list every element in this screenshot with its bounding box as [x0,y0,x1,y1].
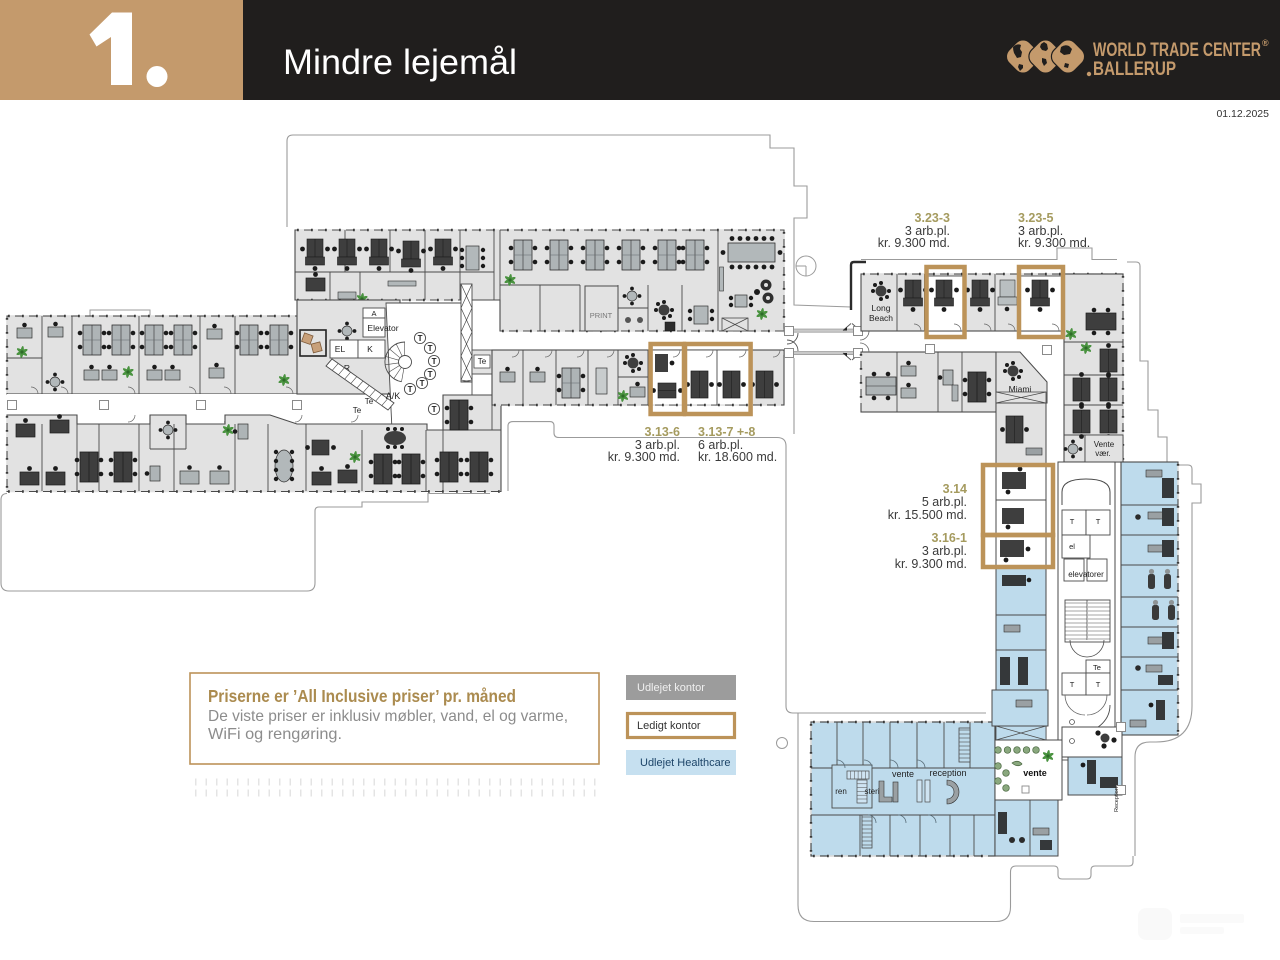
svg-text:ren: ren [835,787,847,796]
svg-text:WORLD TRADE CENTER: WORLD TRADE CENTER [1093,40,1261,61]
svg-text:3.13-7 +-8: 3.13-7 +-8 [698,425,755,439]
svg-text:Priserne er ’All Inclusive pri: Priserne er ’All Inclusive priser’ pr. m… [208,686,516,706]
svg-text:Te: Te [353,406,362,415]
svg-text:Long: Long [872,303,891,313]
svg-text:PRINT: PRINT [590,311,613,320]
svg-text:3.23-3: 3.23-3 [915,211,950,225]
svg-text:reception: reception [929,768,966,778]
svg-text:vente: vente [1023,768,1047,778]
svg-text:01.12.2025: 01.12.2025 [1216,108,1269,120]
svg-text:BALLERUP: BALLERUP [1093,59,1176,80]
svg-text:T: T [1070,517,1075,526]
svg-text:kr. 15.500 md.: kr. 15.500 md. [888,508,967,522]
svg-text:3.23-5: 3.23-5 [1018,211,1053,225]
svg-text:5 arb.pl.: 5 arb.pl. [922,495,967,509]
svg-text:De viste priser er inklusiv mø: De viste priser er inklusiv møbler, vand… [208,708,568,725]
svg-text:elevatorer: elevatorer [1068,570,1104,579]
svg-text:Vente: Vente [1094,440,1115,449]
svg-text:Udlejet Healthcare: Udlejet Healthcare [640,757,731,769]
svg-text:vente: vente [892,769,914,779]
svg-text:T: T [1070,680,1075,689]
svg-text:A/K: A/K [386,391,401,401]
svg-text:kr. 9.300 md.: kr. 9.300 md. [608,450,680,464]
svg-text:3.16-1: 3.16-1 [932,531,967,545]
svg-text:kr. 9.300 md.: kr. 9.300 md. [895,557,967,571]
svg-text:EL: EL [335,344,346,354]
svg-text:el: el [1069,542,1075,551]
svg-text:Reception: Reception [1114,787,1120,812]
svg-text:3 arb.pl.: 3 arb.pl. [922,544,967,558]
svg-text:®: ® [1262,38,1269,48]
svg-text:Te: Te [1093,663,1101,672]
svg-text:Udlejet kontor: Udlejet kontor [637,682,705,694]
svg-text:vær.: vær. [1095,449,1111,458]
svg-text:3.13-6: 3.13-6 [645,425,680,439]
svg-text:Elevator: Elevator [367,323,398,333]
svg-text:A: A [371,309,376,318]
svg-text:kr. 18.600 md.: kr. 18.600 md. [698,450,777,464]
svg-text:Ledigt kontor: Ledigt kontor [637,720,701,732]
svg-text:Te: Te [365,397,374,406]
svg-text:T: T [1096,680,1101,689]
svg-text:kr. 9.300 md.: kr. 9.300 md. [1018,236,1090,250]
svg-text:Te: Te [478,357,487,366]
svg-text:K: K [367,344,373,354]
svg-text:Mindre lejemål: Mindre lejemål [283,43,517,82]
svg-text:kr. 9.300 md.: kr. 9.300 md. [878,236,950,250]
svg-text:3.14: 3.14 [943,482,967,496]
svg-text:WiFi og rengøring.: WiFi og rengøring. [208,726,342,743]
svg-text:T: T [1096,517,1101,526]
svg-text:Beach: Beach [869,313,893,323]
